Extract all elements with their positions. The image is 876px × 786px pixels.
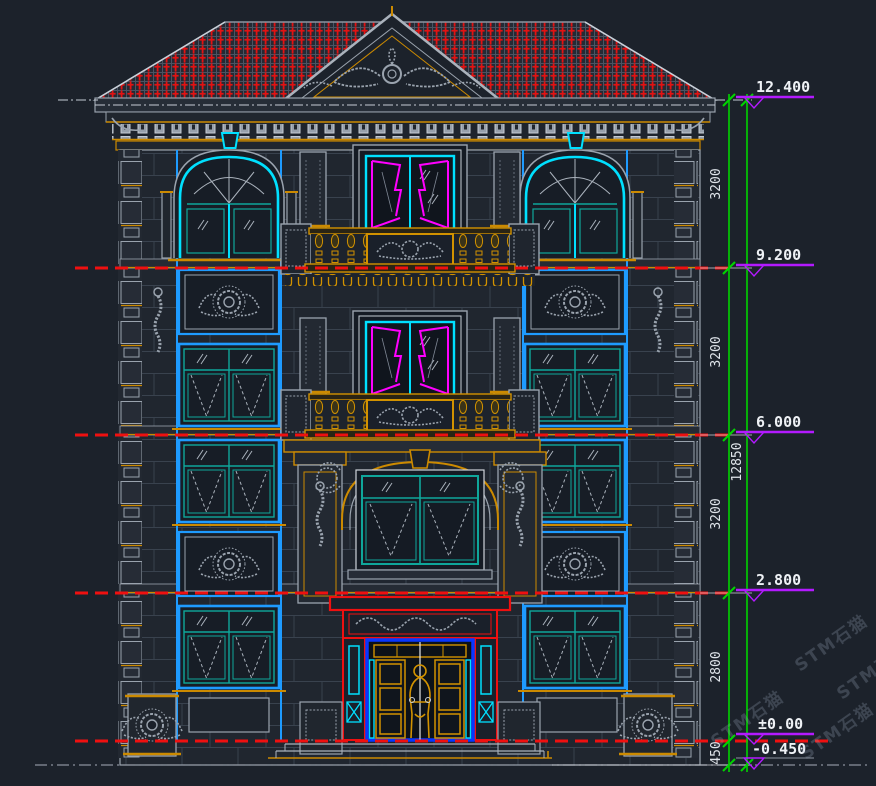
entrance <box>330 597 510 740</box>
center-ground-arch <box>284 440 546 603</box>
dentil-band <box>112 124 704 139</box>
center-floor-3 <box>281 145 539 286</box>
cad-drawing-stage: 3200 3200 3200 2800 450 12850 12.400 9.2… <box>0 0 876 786</box>
center-floor-2 <box>281 311 539 452</box>
svg-text:2.800: 2.800 <box>756 571 801 589</box>
entrance-pier-left <box>343 638 365 740</box>
tower-right-window-1 <box>525 344 625 426</box>
tower-right-ornament-panel-1 <box>525 270 625 334</box>
ground-window <box>348 470 492 579</box>
entrance-pier-right <box>475 638 497 740</box>
tower-left-ornament-panel-1 <box>179 270 279 334</box>
dim-floor-1: 3200 <box>709 498 724 529</box>
tower-left-window-2 <box>179 440 279 522</box>
entablature <box>95 98 715 150</box>
entrance-cornice <box>330 597 510 610</box>
svg-text:9.200: 9.200 <box>756 246 801 264</box>
tower-left-base-panel <box>189 698 269 732</box>
svg-text:6.000: 6.000 <box>756 413 801 431</box>
dim-floor-2: 3200 <box>709 336 724 367</box>
dim-floor-3: 3200 <box>709 168 724 199</box>
svg-text:12.400: 12.400 <box>756 78 810 96</box>
quoins-left <box>118 150 142 758</box>
balcony-floor-3 <box>281 224 539 286</box>
tower-left-ornament-panel-2 <box>179 532 279 596</box>
dim-overall: 12850 <box>730 442 745 481</box>
ground-window-sill <box>348 570 492 579</box>
tower-right-window-3 <box>525 606 625 688</box>
tower-left-window-1 <box>179 344 279 426</box>
tower-left-window-3 <box>179 606 279 688</box>
corner-pedestal-left <box>122 694 182 756</box>
tower-right-base-panel <box>537 698 617 732</box>
dim-ground: 2800 <box>709 651 724 682</box>
corner-pedestal-right <box>618 694 678 756</box>
arch-keystone <box>410 450 430 468</box>
quoins-right <box>674 150 698 758</box>
cad-canvas[interactable]: 3200 3200 3200 2800 450 12850 12.400 9.2… <box>0 0 876 786</box>
